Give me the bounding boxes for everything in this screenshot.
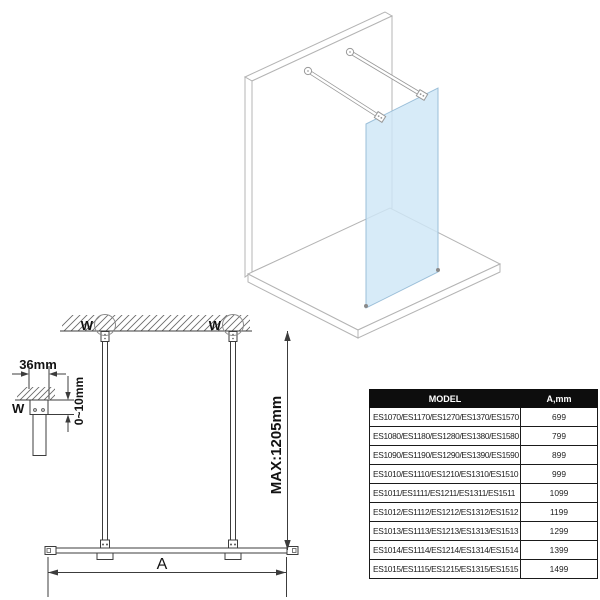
model-cell: ES1080/ES1180/ES1280/ES1380/ES1580 xyxy=(370,427,521,446)
wall-mount-label-left: W xyxy=(81,318,94,333)
model-cell: ES1012/ES1112/ES1212/ES1312/ES1512 xyxy=(370,503,521,522)
spec-table-row: ES1090/ES1190/ES1290/ES1390/ES1590899 xyxy=(370,446,598,465)
a-mm-cell: 1099 xyxy=(521,484,598,503)
bracket-width-label: 36mm xyxy=(19,357,57,372)
spec-table-body: ES1070/ES1170/ES1270/ES1370/ES1570699ES1… xyxy=(370,408,598,579)
walk-in-shower-install-diagram: W W A xyxy=(0,0,600,600)
ceiling-bracket-right xyxy=(223,315,244,342)
detail-bracket xyxy=(30,400,48,415)
a-mm-cell: 699 xyxy=(521,408,598,427)
a-mm-cell: 1299 xyxy=(521,522,598,541)
spec-table-row: ES1015/ES1115/ES1215/ES1315/ES15151499 xyxy=(370,560,598,579)
model-cell: ES1013/ES1113/ES1213/ES1313/ES1513 xyxy=(370,522,521,541)
spec-table-header-row: MODEL A,mm xyxy=(370,390,598,408)
support-bar-right-2d xyxy=(231,331,236,548)
ceiling-gap-label: 0~10mm xyxy=(72,377,86,425)
glass-floor-fixing-back xyxy=(436,268,440,272)
model-cell: ES1011/ES1111/ES1211/ES1311/ES1511 xyxy=(370,484,521,503)
bracket-detail-view: 36mm W 0~10mm xyxy=(12,357,86,456)
a-mm-column-header: A,mm xyxy=(521,390,598,408)
support-bar-left-2d xyxy=(103,331,108,548)
model-cell: ES1010/ES1110/ES1210/ES1310/ES1510 xyxy=(370,465,521,484)
a-mm-cell: 1199 xyxy=(521,503,598,522)
end-cap-left xyxy=(45,547,56,555)
model-column-header: MODEL xyxy=(370,390,521,408)
width-dimension: A xyxy=(48,556,287,597)
spec-table-row: ES1070/ES1170/ES1270/ES1370/ES1570699 xyxy=(370,408,598,427)
spec-table-row: ES1011/ES1111/ES1211/ES1311/ES15111099 xyxy=(370,484,598,503)
model-cell: ES1090/ES1190/ES1290/ES1390/ES1590 xyxy=(370,446,521,465)
glass-panel xyxy=(366,88,438,308)
spec-table-row: ES1013/ES1113/ES1213/ES1313/ES15131299 xyxy=(370,522,598,541)
a-mm-cell: 999 xyxy=(521,465,598,484)
elevation-view: W W A xyxy=(45,313,298,597)
detail-bar xyxy=(33,415,46,456)
model-cell: ES1070/ES1170/ES1270/ES1370/ES1570 xyxy=(370,408,521,427)
spec-table-row: ES1012/ES1112/ES1212/ES1312/ES15121199 xyxy=(370,503,598,522)
a-mm-cell: 799 xyxy=(521,427,598,446)
width-dimension-label: A xyxy=(157,556,168,573)
a-mm-cell: 1399 xyxy=(521,541,598,560)
max-height-dimension: MAX:1205mm xyxy=(268,331,291,550)
iso-view xyxy=(245,12,500,338)
spec-table: MODEL A,mm ES1070/ES1170/ES1270/ES1370/E… xyxy=(369,389,598,579)
a-mm-cell: 899 xyxy=(521,446,598,465)
wall-mount-label-detail: W xyxy=(12,401,25,416)
model-cell: ES1015/ES1115/ES1215/ES1315/ES1515 xyxy=(370,560,521,579)
end-cap-right xyxy=(287,547,298,555)
glass-floor-fixing-front xyxy=(364,304,368,308)
spec-table-row: ES1010/ES1110/ES1210/ES1310/ES1510999 xyxy=(370,465,598,484)
wall-mount-label-right: W xyxy=(209,318,222,333)
max-height-label: MAX:1205mm xyxy=(268,396,285,494)
model-cell: ES1014/ES1114/ES1214/ES1314/ES1514 xyxy=(370,541,521,560)
spec-table-row: ES1014/ES1114/ES1214/ES1314/ES15141399 xyxy=(370,541,598,560)
a-mm-cell: 1499 xyxy=(521,560,598,579)
glass-top-edge xyxy=(48,548,298,553)
spec-table-row: ES1080/ES1180/ES1280/ES1380/ES1580799 xyxy=(370,427,598,446)
